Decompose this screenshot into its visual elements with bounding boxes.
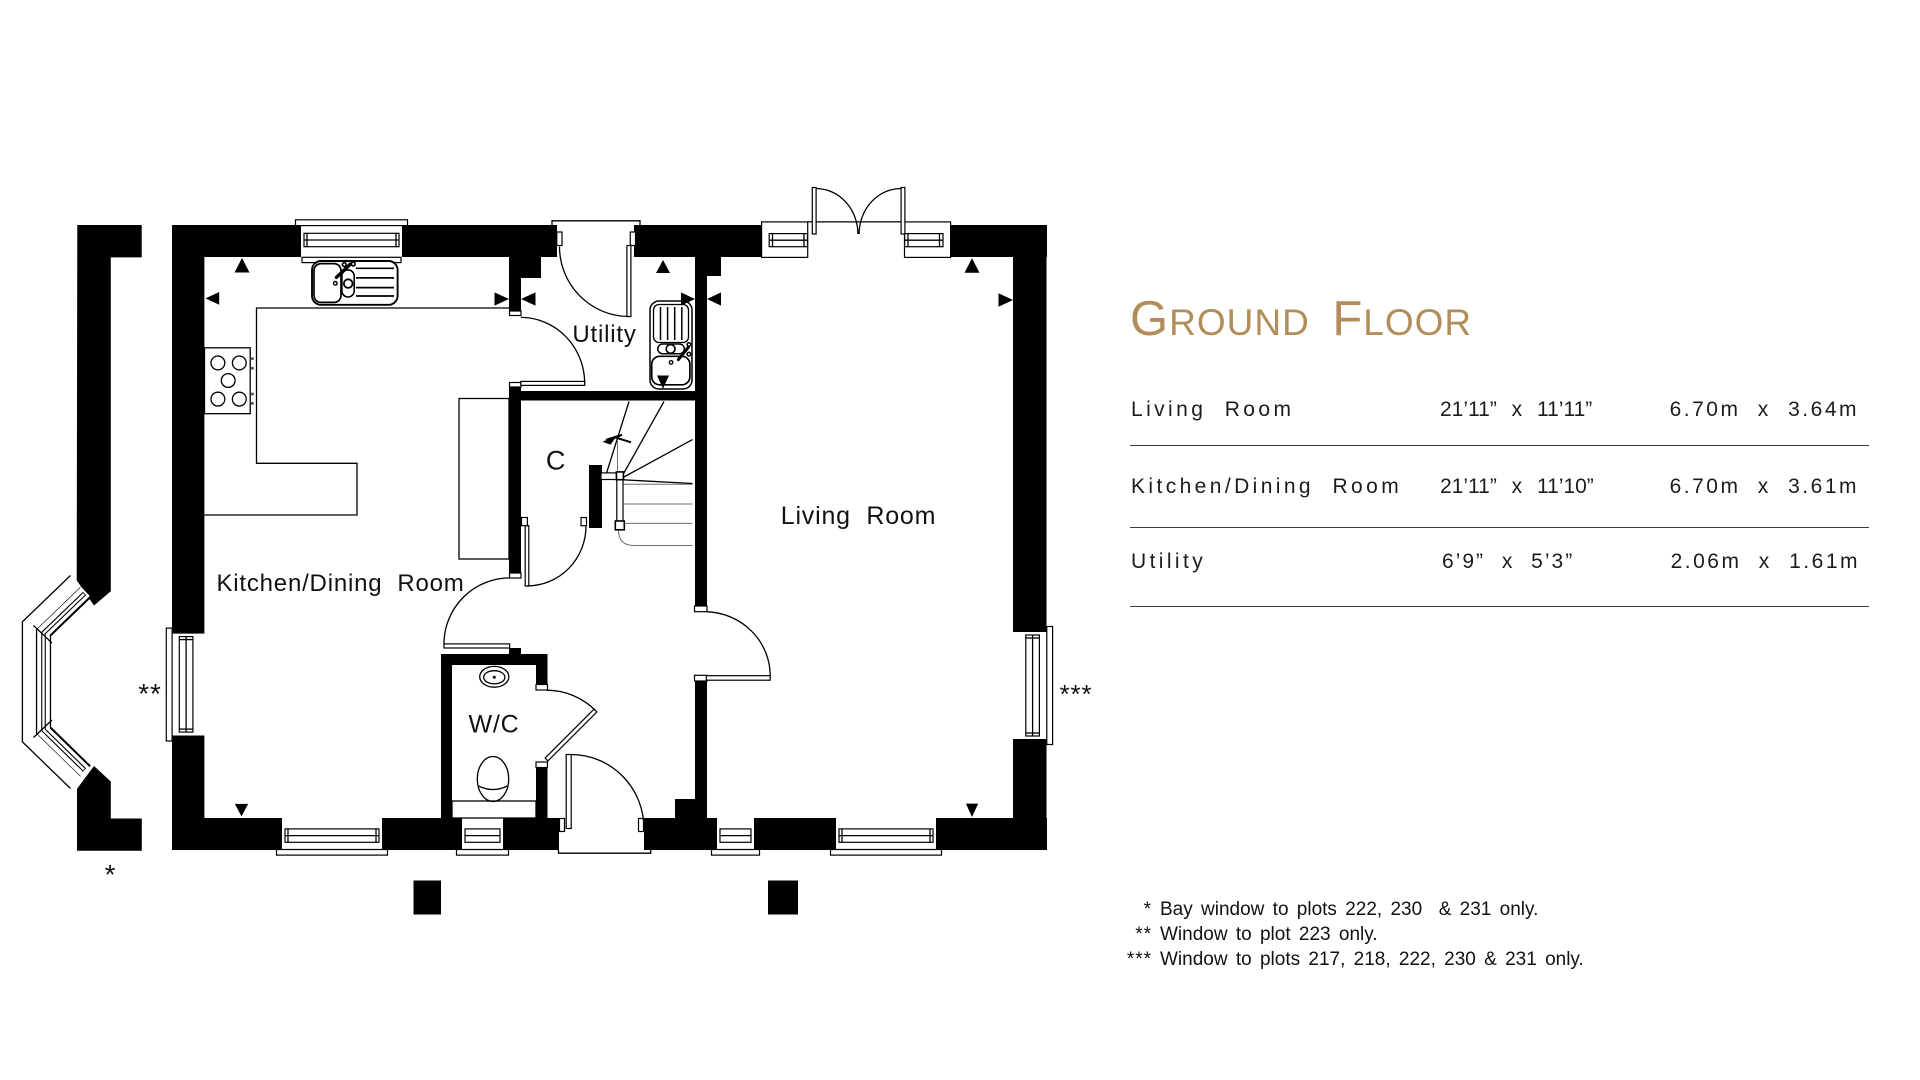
svg-text:W/C: W/C [469,711,520,739]
svg-text:*: * [105,859,117,890]
svg-text:Kitchen/Dining Room: Kitchen/Dining Room [216,570,464,597]
svg-text:**: ** [138,678,161,709]
svg-text:C: C [546,446,566,476]
svg-text:***: *** [1060,679,1093,709]
svg-text:Living Room: Living Room [781,502,937,530]
svg-text:Utility: Utility [572,321,636,348]
